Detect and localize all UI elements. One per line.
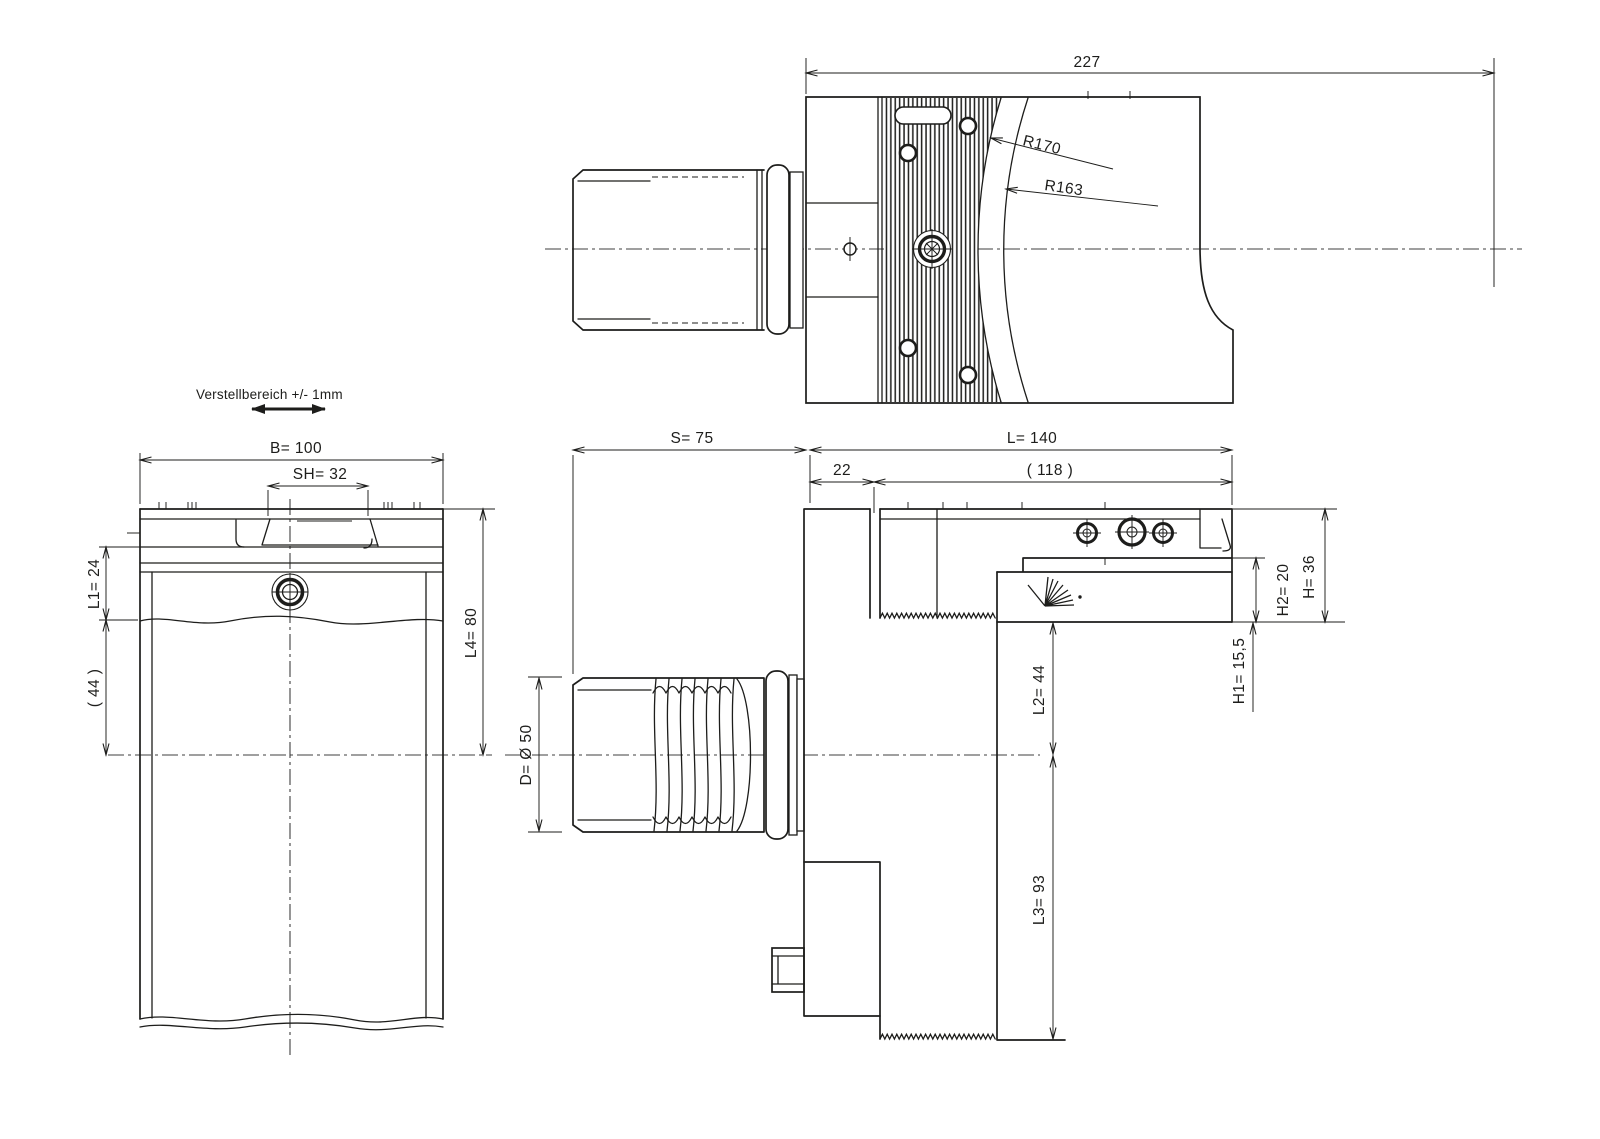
dim-r163: R163	[1006, 177, 1158, 206]
adjust-note: Verstellbereich +/- 1mm	[196, 387, 343, 402]
svg-text:22: 22	[833, 462, 851, 479]
top-view-collar-ring	[790, 172, 803, 328]
dim-l1: L1= 24	[86, 547, 140, 620]
dim-l: L= 140	[810, 430, 1232, 505]
svg-text:( 118 ): ( 118 )	[1027, 462, 1073, 479]
side-view-screws	[1073, 515, 1177, 549]
front-view: Verstellbereich +/- 1mm	[86, 387, 495, 1056]
side-view: S= 75 L= 140 22 ( 118 ) D= Ø 50 L2= 44	[505, 430, 1345, 1040]
clamp-claw	[1200, 510, 1230, 551]
dim-l4: L4= 80	[463, 509, 483, 755]
dim-h1: H1= 15,5	[1231, 623, 1253, 712]
dim-r170: R170	[991, 132, 1113, 169]
front-view-body	[127, 502, 495, 1030]
serration-bottom	[880, 1034, 995, 1039]
svg-text:L= 140: L= 140	[1007, 430, 1057, 447]
top-view-collar	[767, 165, 789, 334]
front-view-slot	[236, 519, 378, 548]
dim-44: ( 44 )	[86, 620, 106, 755]
dim-h2: H2= 20	[1232, 558, 1345, 622]
svg-text:S= 75: S= 75	[671, 430, 714, 447]
top-view-set-screw	[844, 237, 856, 261]
break-line-lower-1	[140, 1014, 443, 1022]
top-view: 227 R170 R163	[545, 54, 1522, 403]
dim-s: S= 75	[573, 430, 806, 674]
svg-text:L1= 24: L1= 24	[86, 559, 103, 609]
top-view-slot	[895, 107, 951, 124]
svg-text:SH= 32: SH= 32	[293, 466, 348, 483]
front-view-bolt	[272, 574, 308, 610]
dim-r163-label: R163	[1043, 177, 1084, 199]
side-view-collar	[766, 671, 788, 839]
dim-b: B= 100	[140, 440, 443, 504]
side-view-body	[772, 502, 1232, 1040]
svg-text:H1= 15,5: H1= 15,5	[1231, 638, 1248, 705]
technical-drawing: 227 R170 R163 Verstellbereich +/- 1mm	[0, 0, 1600, 1139]
dim-l3: L3= 93	[1031, 756, 1053, 1039]
svg-text:B= 100: B= 100	[270, 440, 322, 457]
svg-text:L3= 93: L3= 93	[1031, 875, 1048, 925]
svg-text:L2= 44: L2= 44	[1031, 665, 1048, 715]
drawing-canvas: 227 R170 R163 Verstellbereich +/- 1mm	[0, 0, 1600, 1139]
svg-text:D= Ø 50: D= Ø 50	[518, 725, 535, 786]
dim-22: 22	[810, 462, 874, 513]
side-view-bolt-head	[772, 948, 804, 992]
side-view-collar-step	[797, 679, 804, 831]
dim-227-label: 227	[1073, 54, 1100, 71]
break-line-lower-2	[140, 1023, 443, 1030]
coolant-spray-icon	[1028, 577, 1082, 606]
svg-text:( 44 ): ( 44 )	[86, 669, 103, 708]
dim-r170-label: R170	[1021, 132, 1063, 158]
dim-l2: L2= 44	[1031, 623, 1053, 754]
side-view-collar-ring	[789, 675, 797, 835]
break-line-upper	[140, 616, 443, 624]
svg-text:L4= 80: L4= 80	[463, 608, 480, 658]
dim-118: ( 118 )	[874, 462, 1232, 482]
svg-text:H= 36: H= 36	[1301, 555, 1318, 599]
svg-text:H2= 20: H2= 20	[1275, 564, 1292, 617]
